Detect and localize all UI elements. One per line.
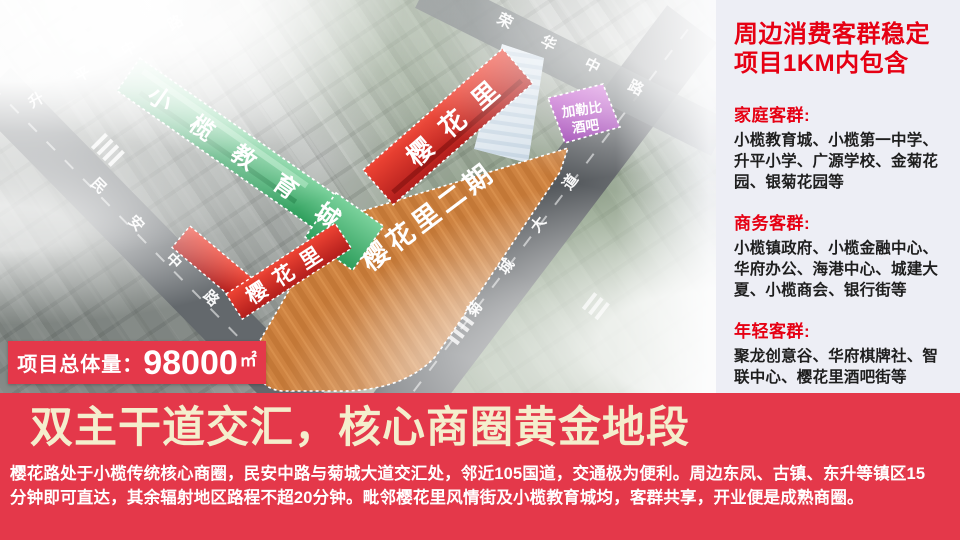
slide: 樱花里二期 小榄教育城 樱花里 (0, 0, 960, 540)
section-young-body: 聚龙创意谷、华府棋牌社、智联中心、樱花里酒吧街等 (734, 346, 948, 388)
crosswalk (582, 292, 610, 320)
map-overlay-svg: 樱花里二期 小榄教育城 樱花里 (0, 0, 716, 393)
volume-value: 98000 (143, 346, 238, 380)
banner-description-line2: 分钟即可直达，其余辐射地区路程不超20分钟。毗邻樱花里风情街及小榄教育城均，客群… (10, 486, 952, 510)
volume-unit: ㎡ (240, 346, 257, 371)
banner-headline: 双主干道交汇，核心商圈黄金地段 (30, 403, 952, 453)
section-business-body: 小榄镇政府、小榄金融中心、华府办公、海港中心、城建大夏、小榄商会、银行街等 (734, 238, 948, 301)
section-family-body: 小榄教育城、小榄第一中学、升平小学、广源学校、金菊花园、银菊花园等 (734, 130, 948, 193)
section-business: 商务客群: 小榄镇政府、小榄金融中心、华府办公、海港中心、城建大夏、小榄商会、银… (734, 209, 948, 301)
panel-title-line2: 项目1KM内包含 (734, 49, 948, 78)
banner-description-line1: 樱花路处于小榄传统核心商圈，民安中路与菊城大道交汇处，邻近105国道，交通极为便… (10, 462, 952, 486)
section-family-heading: 家庭客群: (734, 101, 948, 126)
road-label-minan: 民安中路 (87, 174, 250, 337)
consumer-panel: 周边消费客群稳定 项目1KM内包含 家庭客群: 小榄教育城、小榄第一中学、升平小… (716, 0, 960, 393)
section-business-heading: 商务客群: (734, 209, 948, 234)
panel-title: 周边消费客群稳定 项目1KM内包含 (734, 20, 948, 78)
section-family: 家庭客群: 小榄教育城、小榄第一中学、升平小学、广源学校、金菊花园、银菊花园等 (734, 101, 948, 193)
panel-title-line1: 周边消费客群稳定 (734, 20, 948, 49)
project-volume-badge: 项目总体量：98000㎡ (8, 341, 266, 384)
section-young-heading: 年轻客群: (734, 317, 948, 342)
volume-label: 项目总体量： (17, 348, 143, 377)
section-young: 年轻客群: 聚龙创意谷、华府棋牌社、智联中心、樱花里酒吧街等 (734, 317, 948, 388)
aerial-map: 樱花里二期 小榄教育城 樱花里 (0, 0, 716, 393)
banner-description: 樱花路处于小榄传统核心商圈，民安中路与菊城大道交汇处，邻近105国道，交通极为便… (10, 462, 952, 510)
bottom-banner: 双主干道交汇，核心商圈黄金地段 樱花路处于小榄传统核心商圈，民安中路与菊城大道交… (0, 393, 960, 540)
